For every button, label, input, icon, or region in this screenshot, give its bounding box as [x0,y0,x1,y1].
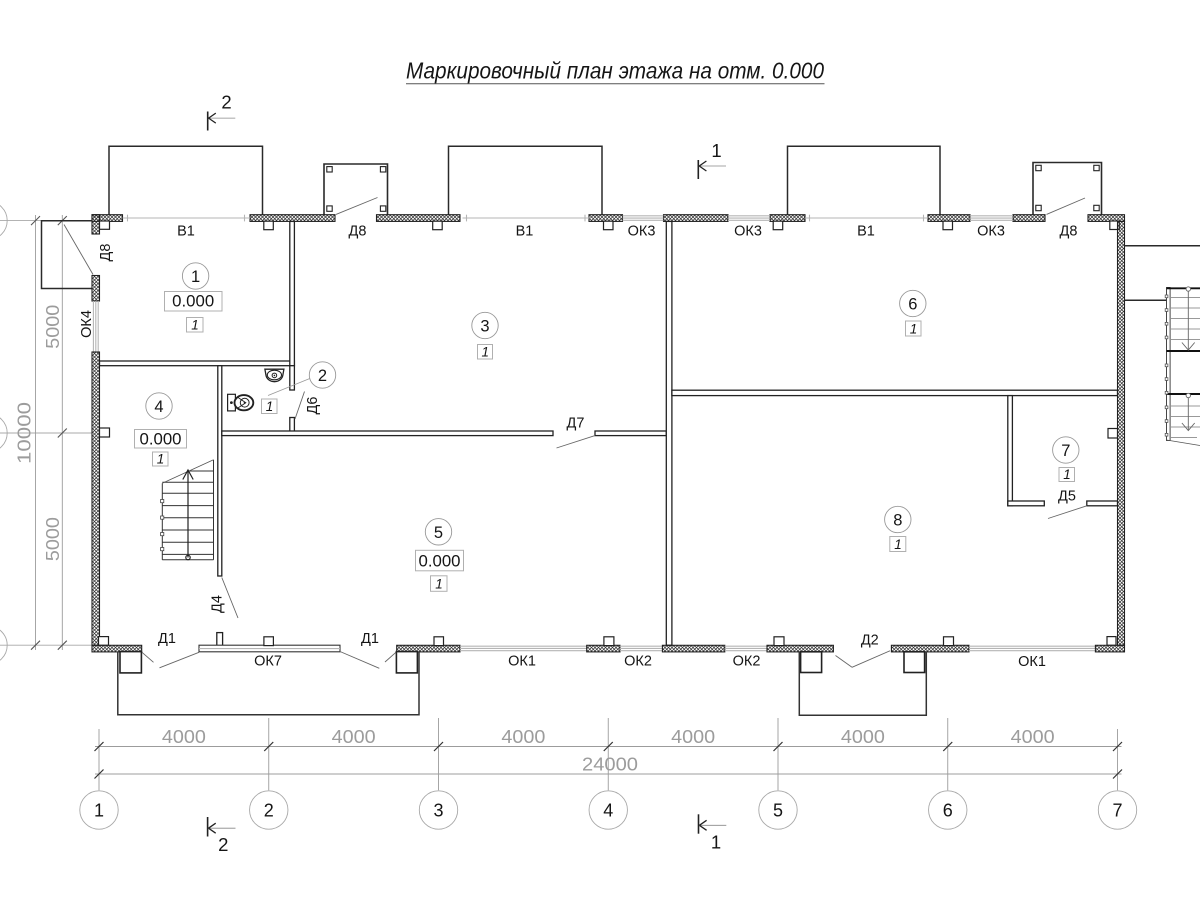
svg-text:5000: 5000 [42,305,63,349]
svg-text:1: 1 [94,800,104,820]
svg-text:3: 3 [480,318,489,336]
svg-text:Д5: Д5 [1058,489,1076,505]
svg-text:1: 1 [435,576,443,591]
svg-text:Д1: Д1 [361,631,379,647]
svg-text:1: 1 [157,452,165,467]
svg-text:ОК4: ОК4 [79,310,95,338]
svg-text:5: 5 [434,524,443,542]
svg-text:В1: В1 [516,223,534,239]
svg-text:Д8: Д8 [1060,223,1078,239]
svg-text:0.000: 0.000 [140,430,182,448]
svg-text:4: 4 [154,398,163,416]
svg-text:2: 2 [264,800,274,820]
svg-text:4000: 4000 [162,726,206,747]
svg-text:6: 6 [943,800,953,820]
svg-text:Д7: Д7 [567,416,585,432]
svg-text:2: 2 [318,367,327,385]
svg-text:1: 1 [711,140,721,161]
svg-text:ОК7: ОК7 [254,654,282,670]
svg-text:1: 1 [191,318,199,333]
svg-text:1: 1 [191,268,200,286]
svg-text:2: 2 [218,834,228,855]
svg-text:ОК1: ОК1 [508,654,536,670]
svg-text:1: 1 [266,399,274,414]
svg-text:4000: 4000 [671,726,715,747]
svg-text:ОК2: ОК2 [624,654,652,670]
svg-text:0.000: 0.000 [172,293,214,311]
svg-text:4000: 4000 [501,726,545,747]
svg-text:1: 1 [711,831,721,852]
svg-text:Д6: Д6 [305,397,321,415]
svg-text:5000: 5000 [42,517,63,561]
svg-text:ОК2: ОК2 [733,654,761,670]
svg-text:Д8: Д8 [98,244,114,262]
svg-text:4000: 4000 [332,726,376,747]
svg-text:5: 5 [773,800,783,820]
svg-text:2: 2 [221,92,231,113]
svg-text:1: 1 [910,321,918,336]
svg-text:Маркировочный план этажа на от: Маркировочный план этажа на отм. 0.000 [406,58,824,84]
svg-text:24000: 24000 [582,754,638,775]
svg-text:Д4: Д4 [210,595,226,613]
svg-text:7: 7 [1061,442,1070,460]
svg-text:1: 1 [894,537,902,552]
svg-text:10000: 10000 [14,402,35,464]
svg-text:ОК3: ОК3 [977,223,1005,239]
svg-text:6: 6 [908,296,917,314]
svg-text:1: 1 [481,345,489,360]
svg-text:ОК1: ОК1 [1018,654,1046,670]
svg-text:0.000: 0.000 [419,552,461,570]
svg-text:4000: 4000 [1011,726,1055,747]
svg-text:4000: 4000 [841,726,885,747]
svg-text:Д8: Д8 [349,223,367,239]
svg-text:1: 1 [1063,467,1071,482]
svg-text:ОК3: ОК3 [734,223,762,239]
svg-text:7: 7 [1112,800,1122,820]
svg-text:В1: В1 [857,223,875,239]
svg-text:Д1: Д1 [158,631,176,647]
svg-text:8: 8 [893,512,902,530]
svg-text:ОК3: ОК3 [628,223,656,239]
svg-text:В1: В1 [177,223,195,239]
svg-text:Д2: Д2 [861,633,879,649]
svg-text:3: 3 [433,800,443,820]
svg-text:4: 4 [603,800,613,820]
